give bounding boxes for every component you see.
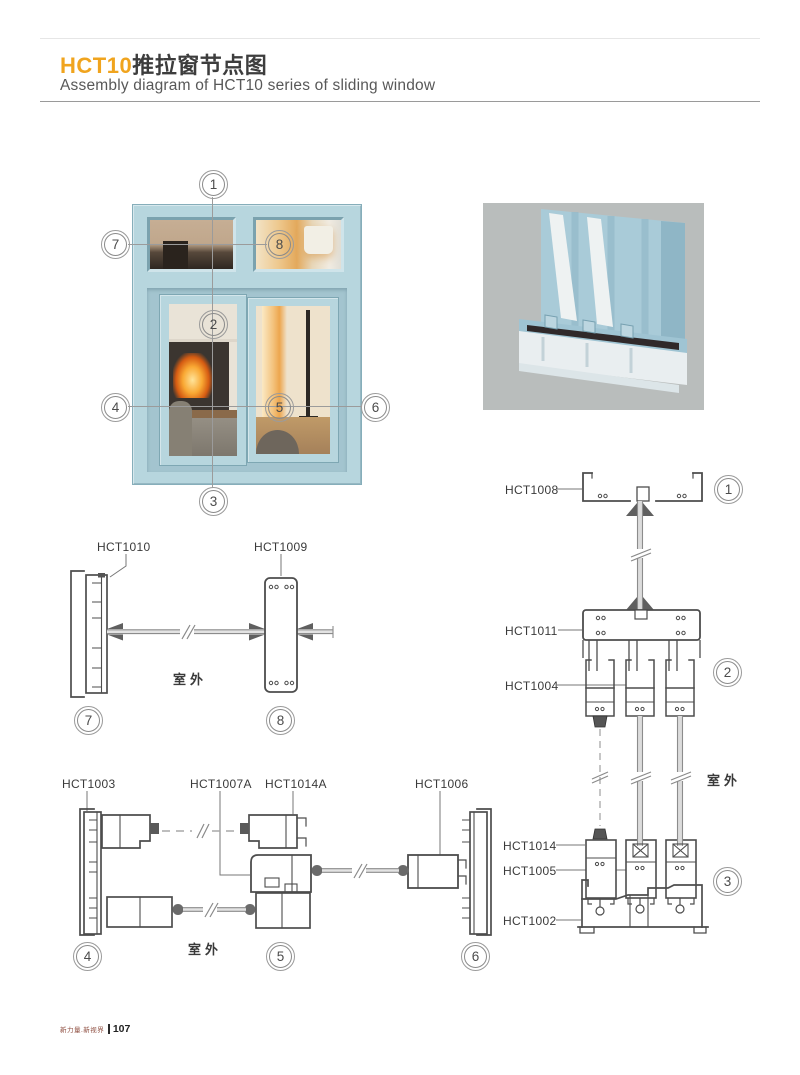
profile-3d-render	[483, 203, 704, 410]
detail-callout-6: 6	[461, 942, 490, 971]
window-callout-7: 7	[101, 230, 130, 259]
detail-callout-8: 8	[266, 706, 295, 735]
sliding-opening	[147, 288, 347, 472]
profile-label-hct1014: HCT1014	[503, 839, 555, 853]
title-chinese: 推拉窗节点图	[132, 53, 267, 78]
window-callout-8: 8	[265, 230, 294, 259]
detail-callout-2: 2	[713, 658, 742, 687]
top-rule	[40, 38, 760, 39]
profile-label-hct1002: HCT1002	[503, 914, 555, 928]
profile-label-hct1005: HCT1005	[503, 864, 555, 878]
page-title: HCT10推拉窗节点图	[60, 48, 267, 80]
callout-line-vertical	[212, 197, 213, 488]
profile-label-hct1009: HCT1009	[254, 540, 307, 554]
window-callout-6: 6	[361, 393, 390, 422]
page-number: 107	[113, 1023, 131, 1035]
profile-label-hct1004: HCT1004	[505, 679, 557, 693]
sliding-sash-right	[247, 297, 339, 463]
page-footer: 新力量.新视界 107	[60, 1023, 130, 1035]
detail-callout-3: 3	[713, 867, 742, 896]
outdoor-label-123: 室外	[707, 770, 741, 789]
detail-callout-5: 5	[266, 942, 295, 971]
catalog-page: HCT10推拉窗节点图 Assembly diagram of HCT10 se…	[0, 0, 800, 1075]
window-callout-4: 4	[101, 393, 130, 422]
profile-label-hct1010: HCT1010	[97, 540, 150, 554]
detail-callout-7: 7	[74, 706, 103, 735]
profile-label-hct1008: HCT1008	[505, 483, 557, 497]
fireplace-box	[169, 342, 229, 410]
page-subtitle: Assembly diagram of HCT10 series of slid…	[60, 77, 435, 95]
floor-lamp-pole	[306, 310, 310, 417]
window-callout-2: 2	[199, 310, 228, 339]
couch-arm	[169, 401, 192, 456]
lamp-shade	[304, 226, 333, 254]
callout-line-middle	[128, 406, 362, 407]
sash-right-glass	[256, 306, 330, 454]
profile-label-hct1007a: HCT1007A	[190, 777, 252, 791]
profile-label-hct1011: HCT1011	[505, 624, 557, 638]
footer-divider	[108, 1024, 110, 1034]
brand-slogan: 新力量.新视界	[60, 1024, 104, 1034]
outdoor-label-456: 室外	[188, 939, 222, 958]
profile-label-hct1014a: HCT1014A	[265, 777, 327, 791]
detail-callout-1: 1	[714, 475, 743, 504]
detail-callout-4: 4	[73, 942, 102, 971]
header-rule	[40, 101, 760, 102]
outdoor-label-78: 室外	[173, 669, 207, 688]
fire-glow	[173, 353, 212, 398]
callout-line-transom	[128, 244, 267, 245]
profile-label-hct1006: HCT1006	[415, 777, 468, 791]
window-callout-3: 3	[199, 487, 228, 516]
window-callout-5: 5	[265, 393, 294, 422]
window-illustration	[132, 204, 362, 485]
title-series-code: HCT10	[60, 53, 132, 78]
profile-label-hct1003: HCT1003	[62, 777, 115, 791]
window-callout-1: 1	[199, 170, 228, 199]
